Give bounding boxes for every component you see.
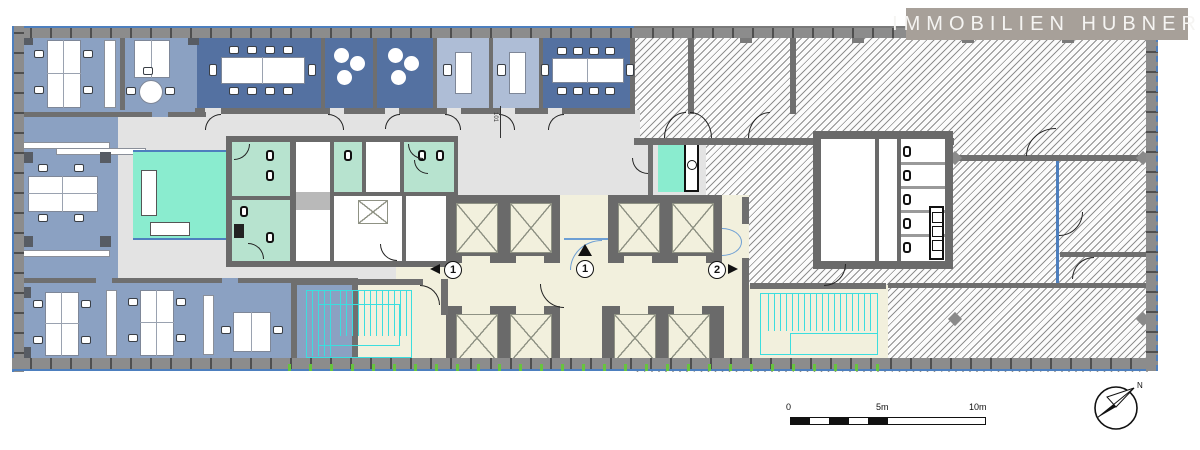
entrance-arrow-up-icon — [578, 244, 592, 256]
chair-graphic — [33, 336, 43, 344]
w-graphic — [321, 28, 325, 112]
abs-graphic — [462, 256, 490, 263]
chair-graphic — [265, 46, 275, 54]
sline-graphic — [790, 333, 878, 355]
chair-graphic — [128, 298, 138, 306]
elevator-car — [668, 314, 710, 362]
abs-graphic — [932, 226, 943, 237]
abs-graphic — [222, 278, 238, 283]
exit-arrow-left-icon — [430, 264, 440, 274]
w-graphic — [291, 279, 297, 370]
dimension-label: 101 — [492, 112, 498, 122]
w-graphic — [489, 28, 493, 112]
abs-graphic — [47, 73, 81, 74]
chair-graphic — [221, 326, 231, 334]
fix-graphic — [903, 218, 911, 229]
cab-graphic — [106, 290, 117, 356]
shape-graphic — [868, 418, 888, 424]
marker-label: 1 — [582, 263, 588, 275]
chair-graphic — [557, 87, 567, 95]
desk-cluster — [140, 290, 174, 356]
chair-graphic — [626, 64, 634, 76]
scale-bar-segments — [790, 417, 986, 425]
cab-graphic — [18, 142, 110, 149]
chair-graphic — [176, 298, 186, 306]
chair-graphic — [38, 214, 48, 222]
shaft-room — [366, 142, 400, 192]
fix-graphic — [344, 150, 352, 161]
chair-graphic — [229, 87, 239, 95]
chair-graphic — [265, 87, 275, 95]
chair-graphic — [33, 300, 43, 308]
w-graphic — [750, 283, 886, 289]
sofa — [150, 222, 190, 236]
scale-bar: 0 5m 10m — [786, 402, 996, 428]
chair-graphic — [273, 326, 283, 334]
elevator-car — [510, 314, 552, 362]
sofa — [141, 170, 157, 216]
abs-graphic — [388, 48, 403, 63]
abs-graphic — [587, 58, 588, 83]
chair-graphic — [143, 67, 153, 75]
desk-graphic — [455, 52, 472, 94]
chair-graphic — [443, 64, 452, 76]
chair-graphic — [81, 336, 91, 344]
service-room — [821, 139, 875, 261]
elevator-car — [614, 314, 656, 362]
abs-graphic — [624, 256, 652, 263]
abs-graphic — [516, 256, 544, 263]
abs-graphic — [61, 292, 62, 356]
fix-graphic — [240, 206, 248, 217]
abs-graphic — [296, 192, 330, 210]
shaft-room — [879, 139, 897, 261]
chair-graphic — [176, 334, 186, 342]
abs-graphic — [350, 56, 365, 71]
abs-graphic — [678, 256, 706, 263]
col-graphic — [100, 236, 111, 247]
abs-graphic — [62, 176, 63, 212]
chair-graphic — [573, 47, 583, 55]
w-graphic — [195, 108, 635, 114]
abs-graphic — [932, 240, 943, 251]
chair-graphic — [605, 47, 615, 55]
facade-top — [12, 26, 634, 38]
w-graphic — [433, 28, 437, 112]
w-graphic — [373, 28, 377, 112]
w-graphic — [14, 112, 206, 117]
chair-graphic — [573, 87, 583, 95]
kitchenette — [658, 142, 686, 192]
round-table — [139, 80, 163, 104]
marker-label: 1 — [450, 264, 456, 276]
abs-graphic — [901, 162, 945, 165]
chair-graphic — [126, 87, 136, 95]
w-graphic — [742, 197, 749, 370]
abs-graphic — [620, 306, 648, 314]
scale-label-0: 0 — [786, 402, 791, 412]
chair-graphic — [74, 214, 84, 222]
abs-graphic — [337, 70, 352, 85]
abs-graphic — [447, 108, 461, 114]
chair-graphic — [81, 300, 91, 308]
scale-label-10m: 10m — [969, 402, 987, 412]
abs-graphic — [251, 312, 252, 352]
cab-graphic — [104, 40, 116, 108]
chair-graphic — [83, 86, 93, 94]
desk-cluster — [28, 176, 98, 212]
abs-graphic — [45, 323, 79, 324]
abs-graphic — [932, 212, 943, 223]
desk-graphic — [509, 52, 526, 94]
chair-graphic — [247, 87, 257, 95]
elevator-car — [456, 203, 498, 253]
abs-graphic — [330, 108, 344, 114]
elevator-car — [672, 203, 714, 253]
abs-graphic — [901, 186, 945, 189]
chair-graphic — [283, 87, 293, 95]
abs-graphic — [674, 306, 702, 314]
abs-graphic — [391, 70, 406, 85]
w-graphic — [888, 283, 1148, 288]
shape-graphic — [829, 418, 849, 424]
cab-graphic — [18, 250, 110, 257]
chair-graphic — [308, 64, 316, 76]
shape-graphic — [1095, 387, 1137, 429]
chair-graphic — [229, 46, 239, 54]
chair-graphic — [605, 87, 615, 95]
marker-label: 2 — [714, 264, 720, 276]
fix-graphic — [266, 170, 274, 181]
w-graphic — [790, 30, 796, 114]
abs-graphic — [404, 56, 419, 71]
chair-graphic — [283, 46, 293, 54]
chair-graphic — [34, 50, 44, 58]
cab-graphic — [203, 295, 214, 355]
abs-graphic — [28, 193, 98, 194]
chair-graphic — [589, 87, 599, 95]
shape-graphic: N — [1086, 378, 1150, 438]
abs-graphic — [501, 108, 515, 114]
shape-graphic — [791, 418, 810, 424]
fix-graphic — [903, 194, 911, 205]
sline-graphic — [318, 304, 400, 346]
chair-graphic — [165, 87, 175, 95]
lounge-room-2 — [377, 30, 433, 112]
elevator-car — [618, 203, 660, 253]
elevator-car — [456, 314, 498, 362]
abs-graphic — [96, 278, 112, 283]
abs-graphic — [516, 306, 544, 314]
chair-graphic — [38, 164, 48, 172]
shape-graphic — [888, 418, 985, 424]
w-graphic — [1060, 252, 1148, 257]
w-graphic — [291, 279, 423, 285]
abs-graphic — [687, 160, 697, 170]
chair-graphic — [557, 47, 567, 55]
chair-graphic — [128, 334, 138, 342]
abs-graphic — [462, 306, 490, 314]
shape-graphic — [810, 418, 829, 424]
facade-right — [1146, 26, 1158, 371]
chair-graphic — [541, 64, 549, 76]
brand-logo-text: IMMOBILIEN HUBNER — [892, 13, 1200, 36]
abs-graphic — [742, 224, 749, 258]
marker-1-left: 1 — [444, 261, 462, 279]
shape-graphic — [849, 418, 868, 424]
chair-graphic — [589, 47, 599, 55]
w-graphic — [688, 30, 694, 114]
fix-graphic — [903, 146, 911, 157]
chair-graphic — [74, 164, 84, 172]
fix-graphic — [266, 150, 274, 161]
exit-arrow-right-icon — [728, 264, 738, 274]
abs-graphic — [140, 322, 174, 323]
abs-graphic — [262, 57, 263, 84]
desk-cluster — [45, 292, 79, 356]
chair-graphic — [247, 46, 257, 54]
abs-graphic — [152, 112, 168, 117]
chair-graphic — [34, 86, 44, 94]
chair-graphic — [83, 50, 93, 58]
chair-graphic — [209, 64, 217, 76]
abs-graphic — [385, 108, 399, 114]
w-graphic — [441, 279, 448, 315]
fix-graphic — [266, 232, 274, 243]
abs-graphic — [500, 106, 501, 138]
scale-label-5m: 5m — [876, 402, 889, 412]
conference-table — [552, 58, 624, 83]
w-graphic — [648, 138, 653, 196]
shaft-x — [358, 200, 388, 224]
marker-2-right: 2 — [708, 261, 726, 279]
chair-graphic — [497, 64, 506, 76]
desk-cluster — [47, 40, 81, 108]
north-label: N — [1137, 381, 1143, 390]
fix-graphic — [903, 170, 911, 181]
abs-graphic — [548, 108, 562, 114]
marker-1-center: 1 — [576, 260, 594, 278]
abs-graphic — [334, 48, 349, 63]
floor-plan: 1 1 2 101 IMMOBIL — [0, 0, 1200, 450]
w-graphic — [120, 32, 125, 110]
elevator-car — [510, 203, 552, 253]
abs-graphic — [63, 40, 64, 108]
desk-cluster — [233, 312, 271, 352]
abs-graphic — [234, 224, 244, 238]
fix-graphic — [903, 242, 911, 253]
facade-green-ticks — [288, 364, 886, 371]
abs-graphic — [156, 290, 157, 356]
conference-table — [221, 57, 305, 84]
col-graphic — [100, 152, 111, 163]
north-arrow-icon: N — [1086, 378, 1150, 438]
brand-logo: IMMOBILIEN HUBNER — [906, 8, 1188, 40]
facade-left — [12, 26, 24, 372]
fix-graphic — [436, 150, 444, 161]
